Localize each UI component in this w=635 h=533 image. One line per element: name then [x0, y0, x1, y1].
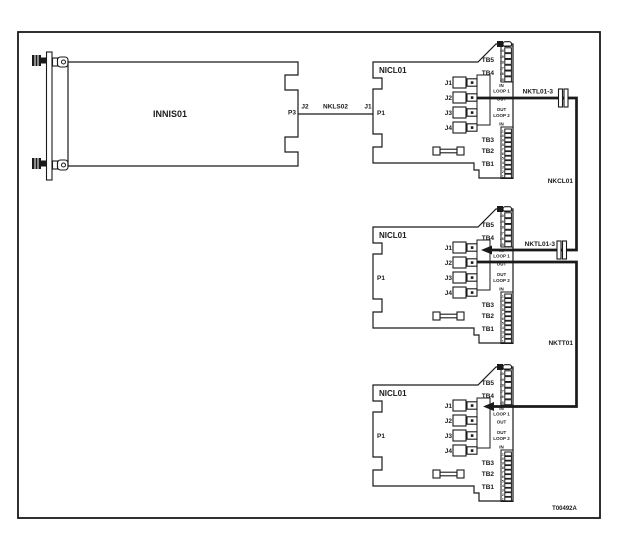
- loop-annotation: IN: [499, 122, 504, 127]
- nktl01-3-label-2: NKTL01-3: [525, 241, 556, 248]
- loop-annotation: IN: [499, 445, 504, 450]
- pin-number: 30: [500, 49, 504, 53]
- pin-number: 25: [500, 78, 504, 82]
- nktt01-label: NKTT01: [548, 340, 573, 347]
- jack-plug-icon: [453, 77, 466, 88]
- pin-number: 7: [502, 148, 504, 152]
- document-page: INNIS01 P3 J2 NKLS02 J1 NICL01P1J1J2J3J4…: [0, 0, 635, 533]
- j2-port-label: J2: [301, 104, 309, 111]
- pin-number: 11: [500, 295, 504, 299]
- tb4-label: TB4: [482, 235, 495, 242]
- jack-plug-icon: [453, 122, 466, 133]
- tb2-label: TB2: [482, 471, 495, 478]
- fuse-cap-icon: [433, 147, 440, 155]
- jack-plug-icon: [453, 257, 466, 268]
- pin-number: 7: [502, 313, 504, 317]
- jack-label: J3: [445, 275, 453, 282]
- nkls02-cable-label: NKLS02: [323, 104, 348, 111]
- jack-label: J2: [445, 418, 453, 425]
- pin-number: 4: [502, 326, 504, 330]
- tb3-label: TB3: [482, 137, 495, 144]
- pin-number: 29: [500, 378, 504, 382]
- pin-number: 5: [502, 480, 504, 484]
- wiring-diagram: INNIS01 P3 J2 NKLS02 J1 NICL01P1J1J2J3J4…: [0, 0, 635, 533]
- tb3-label: TB3: [482, 460, 495, 467]
- jack-plug-icon: [453, 107, 466, 118]
- jack-plug-icon: [453, 242, 466, 253]
- pin-number: 10: [500, 299, 504, 303]
- pin-number: 1: [502, 175, 504, 179]
- tb5-label: TB5: [482, 57, 495, 64]
- p3-port-label: P3: [288, 110, 296, 117]
- pin-number: 29: [500, 220, 504, 224]
- pin-number: 3: [502, 166, 504, 170]
- jack-label: J4: [445, 290, 453, 297]
- fuse-cap-icon: [457, 470, 464, 478]
- jack-label: J4: [445, 125, 453, 132]
- tb2-label: TB2: [482, 313, 495, 320]
- fuse-body-icon: [440, 149, 457, 153]
- jack-plug-icon: [453, 415, 466, 426]
- pin-number: 9: [502, 304, 504, 308]
- pin-number: 26: [500, 72, 504, 76]
- fuse-body-icon: [440, 472, 457, 476]
- jack-pin-icon: [471, 111, 474, 114]
- jack-label: J4: [445, 448, 453, 455]
- pin-number: 29: [500, 55, 504, 59]
- pin-number: 26: [500, 237, 504, 241]
- pin-number: 5: [502, 322, 504, 326]
- loop-annotation: LOOP 1: [493, 254, 510, 259]
- latch-icon: [53, 160, 69, 170]
- nicl01-label: NICL01: [379, 389, 407, 398]
- pin-number: 2: [502, 170, 504, 174]
- pin-number: 27: [500, 66, 504, 70]
- nicl01-label: NICL01: [379, 231, 407, 240]
- pin-number: 2: [502, 493, 504, 497]
- j1-port-label: J1: [364, 104, 372, 111]
- tb1-label: TB1: [482, 161, 495, 168]
- pin-number: 11: [500, 453, 504, 457]
- jack-label: J1: [445, 80, 453, 87]
- pin-number: 4: [502, 484, 504, 488]
- pin-number: 28: [500, 61, 504, 65]
- jack-pin-icon: [471, 449, 474, 452]
- jack-plug-icon: [453, 445, 466, 456]
- loop-annotation: OUT: [497, 272, 507, 277]
- tb5-label: TB5: [482, 380, 495, 387]
- pin-number: 3: [502, 331, 504, 335]
- jack-label: J1: [445, 245, 453, 252]
- pin-number: 8: [502, 466, 504, 470]
- nicl01-label: NICL01: [379, 66, 407, 75]
- jack-pin-icon: [471, 96, 474, 99]
- loop-annotation: IN: [499, 287, 504, 292]
- pin-number: 7: [502, 471, 504, 475]
- jack-pin-icon: [471, 126, 474, 129]
- tb1-label: TB1: [482, 484, 495, 491]
- jack-plug-icon: [453, 272, 466, 283]
- jack-label: J2: [445, 95, 453, 102]
- jack-plug-icon: [453, 287, 466, 298]
- p1-port-label: P1: [377, 110, 385, 117]
- jack-pin-icon: [471, 276, 474, 279]
- pin-number: 28: [500, 226, 504, 230]
- fuse-body-icon: [440, 314, 457, 318]
- pin-number: 10: [500, 134, 504, 138]
- pin-number: 25: [500, 401, 504, 405]
- jack-plug-icon: [453, 92, 466, 103]
- latch-icon: [53, 57, 69, 67]
- loop-annotation: LOOP 2: [493, 436, 510, 441]
- nkcl01-label: NKCL01: [548, 178, 574, 185]
- pin-number: 26: [500, 395, 504, 399]
- pin-number: 2: [502, 335, 504, 339]
- jack-label: J2: [445, 260, 453, 267]
- pin-number: 6: [502, 317, 504, 321]
- pin-number: 8: [502, 143, 504, 147]
- p1-port-label: P1: [377, 275, 385, 282]
- jack-pin-icon: [471, 261, 474, 264]
- pin-number: 6: [502, 475, 504, 479]
- pin-number: 27: [500, 389, 504, 393]
- fuse-cap-icon: [433, 312, 440, 320]
- jack-pin-icon: [471, 434, 474, 437]
- tb1-label: TB1: [482, 326, 495, 333]
- pin-number: 6: [502, 152, 504, 156]
- pin-number: 8: [502, 308, 504, 312]
- pin-number: 9: [502, 139, 504, 143]
- jack-label: J1: [445, 403, 453, 410]
- loop-annotation: OUT: [497, 107, 507, 112]
- jack-plug-icon: [453, 430, 466, 441]
- pin-number: 25: [500, 243, 504, 247]
- jack-label: J3: [445, 433, 453, 440]
- pin-number: 3: [502, 489, 504, 493]
- nktl01-3-label-1: NKTL01-3: [523, 89, 554, 96]
- jack-pin-icon: [471, 404, 474, 407]
- fuse-cap-icon: [457, 147, 464, 155]
- jack-pin-icon: [471, 291, 474, 294]
- pin-number: 5: [502, 157, 504, 161]
- loop-annotation: OUT: [497, 420, 507, 425]
- tb4-label: TB4: [482, 70, 495, 77]
- tb5-label: TB5: [482, 222, 495, 229]
- p1-port-label: P1: [377, 433, 385, 440]
- jack-pin-icon: [471, 246, 474, 249]
- tb3-label: TB3: [482, 302, 495, 309]
- loop-annotation: LOOP 2: [493, 113, 510, 118]
- tb2-label: TB2: [482, 148, 495, 155]
- pin-number: 28: [500, 384, 504, 388]
- loop-annotation: OUT: [497, 430, 507, 435]
- pin-number: 11: [500, 130, 504, 134]
- pin-number: 30: [500, 214, 504, 218]
- pin-number: 10: [500, 457, 504, 461]
- pin-number: 4: [502, 161, 504, 165]
- innis01-label: INNIS01: [153, 109, 187, 119]
- jack-pin-icon: [471, 419, 474, 422]
- loop-annotation: IN: [499, 83, 504, 88]
- fuse-cap-icon: [433, 470, 440, 478]
- pin-number: 27: [500, 231, 504, 235]
- tb4-label: TB4: [482, 393, 495, 400]
- fuse-cap-icon: [457, 312, 464, 320]
- loop-annotation: LOOP 1: [493, 89, 510, 94]
- jack-pin-icon: [471, 81, 474, 84]
- pin-number: 30: [500, 372, 504, 376]
- jack-plug-icon: [453, 400, 466, 411]
- pin-number: 9: [502, 462, 504, 466]
- faceplate: [47, 52, 53, 180]
- loop-annotation: LOOP 2: [493, 278, 510, 283]
- loop-annotation: LOOP 1: [493, 412, 510, 417]
- jack-label: J3: [445, 110, 453, 117]
- pin-number: 1: [502, 340, 504, 344]
- pin-number: 1: [502, 498, 504, 502]
- figure-id: T00492A: [552, 506, 577, 512]
